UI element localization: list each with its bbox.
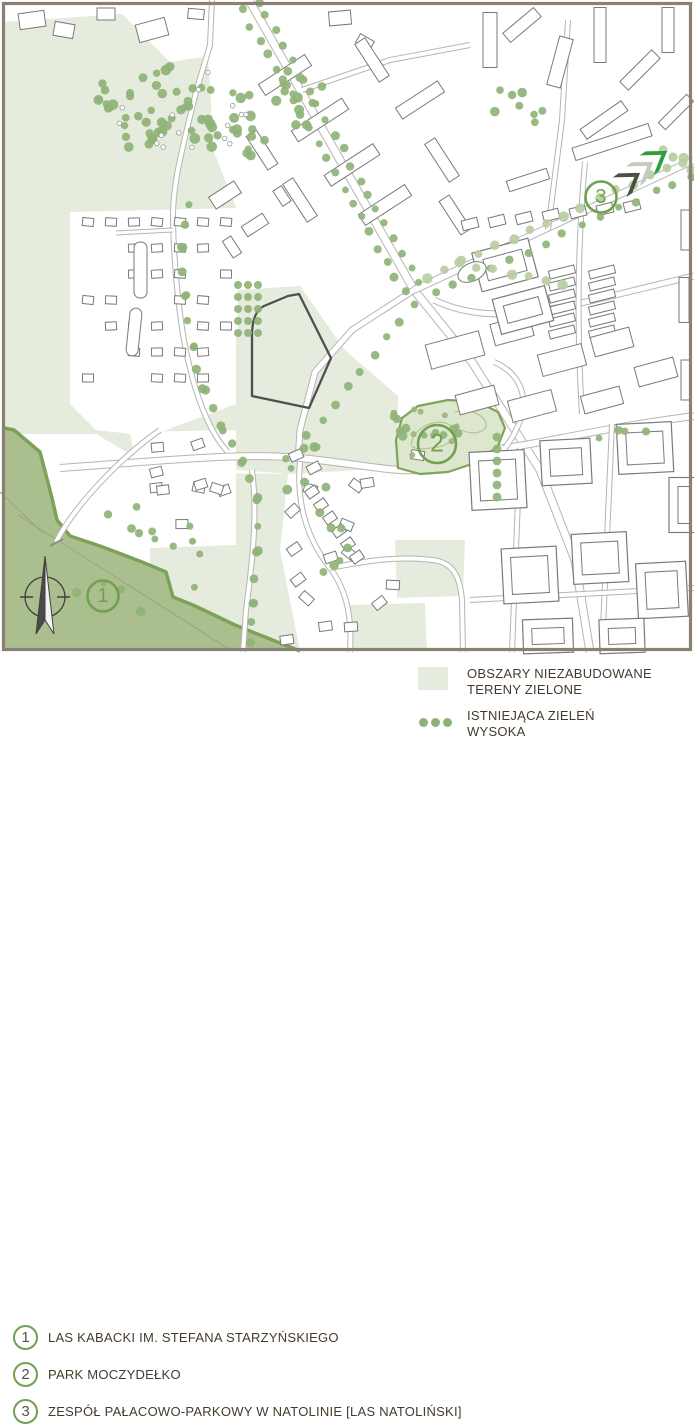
legend-item-2: 2 PARK MOCZYDEŁKO xyxy=(13,1362,181,1387)
legend-item-1: 1 LAS KABACKI IM. STEFANA STARZYŃSKIEGO xyxy=(13,1325,339,1350)
legend-label-1: LAS KABACKI IM. STEFANA STARZYŃSKIEGO xyxy=(48,1330,339,1345)
green-area-swatch xyxy=(418,667,448,690)
legend-label-3: ZESPÓŁ PAŁACOWO-PARKOWY W NATOLINIE [LAS… xyxy=(48,1404,462,1419)
svg-text:2: 2 xyxy=(430,431,444,458)
tree-dots-swatch xyxy=(419,718,452,727)
legend-label-2: PARK MOCZYDEŁKO xyxy=(48,1367,181,1382)
legend-green-areas-line1: OBSZARY NIEZABUDOWANE xyxy=(467,666,652,682)
tree-dot-icon xyxy=(419,718,428,727)
svg-text:3: 3 xyxy=(595,186,606,208)
tree-dot-icon xyxy=(431,718,440,727)
legend-label-green-areas: OBSZARY NIEZABUDOWANE TERENY ZIELONE xyxy=(467,666,652,698)
legend-tall-greenery-line1: ISTNIEJĄCA ZIELEŃ xyxy=(467,708,595,724)
legend-number-2-icon: 2 xyxy=(13,1362,38,1387)
legend-label-tall-greenery: ISTNIEJĄCA ZIELEŃ WYSOKA xyxy=(467,708,595,740)
map-drawing: 123 xyxy=(0,0,694,655)
map-legend: 1 LAS KABACKI IM. STEFANA STARZYŃSKIEGO … xyxy=(0,655,694,778)
svg-text:1: 1 xyxy=(97,585,108,607)
legend-tall-greenery-line2: WYSOKA xyxy=(467,724,595,740)
legend-number-3-icon: 3 xyxy=(13,1399,38,1424)
legend-green-areas-line2: TERENY ZIELONE xyxy=(467,682,652,698)
legend-item-3: 3 ZESPÓŁ PAŁACOWO-PARKOWY W NATOLINIE [L… xyxy=(13,1399,462,1424)
site-map: 123 xyxy=(0,0,694,655)
tree-dot-icon xyxy=(443,718,452,727)
legend-number-1-icon: 1 xyxy=(13,1325,38,1350)
